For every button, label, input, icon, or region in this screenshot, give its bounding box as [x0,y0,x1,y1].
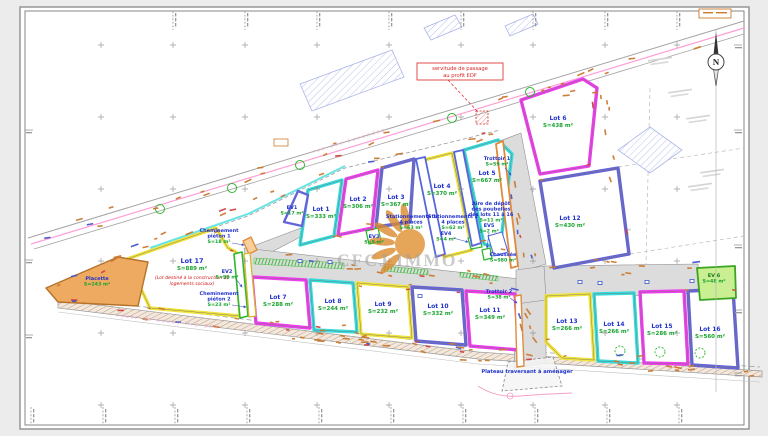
street-furniture-icon [328,261,332,264]
dimension-mark [608,107,610,111]
dimension-mark [343,338,350,340]
coordinate-tick-label [393,419,394,422]
feature-stat1-area: S=63 m² [400,225,423,231]
lot-16-label: Lot 16 [699,326,720,333]
coordinate-tick-label [679,18,680,21]
lot-17-label: Lot 17 [180,257,203,265]
coordinate-tick-label [735,247,742,248]
feature-aire-label: des lots 11 à 16 [469,212,514,218]
coordinate-tick-label [175,18,176,21]
dimension-mark [383,345,391,347]
lot-1-area: S=333 m² [306,213,337,220]
feature-aire-area: S=11 m² [480,218,503,224]
coordinate-tick-label [463,23,464,26]
coordinate-tick-label [679,23,680,26]
coordinate-tick-label [393,409,394,412]
coordinate-tick-label [609,419,610,422]
coordinate-tick-label [607,13,608,16]
lot-13-area: S=266 m² [552,325,583,332]
coordinate-tick-label [391,13,392,16]
lot-1-label: Lot 1 [312,206,329,213]
coordinate-tick-label [319,18,320,21]
street-sign-box [274,139,288,146]
dimension-mark [478,360,481,362]
street-furniture-icon [645,281,649,284]
coordinate-tick-label [535,13,536,16]
dimension-mark [361,341,368,343]
coordinate-tick-label [537,409,538,412]
lot-11-area: S=349 m² [475,314,506,321]
coordinate-tick-label [321,419,322,422]
watermark-text: CFCJ IMMO [337,250,458,270]
coordinate-tick-label [33,409,34,412]
coordinate-tick-label [26,337,32,338]
lot-11-label: Lot 11 [479,307,500,314]
scale-note-dash [716,12,727,13]
dimension-mark [364,344,369,346]
coordinate-tick-label [391,23,392,26]
dimension-mark [469,349,473,351]
coordinate-tick-label [537,419,538,422]
coordinate-tick-label [247,18,248,21]
feature-ev6-label: EV 6 [708,273,721,279]
north-arrow-label: N [713,57,720,67]
feature-placette-area: S=243 m² [84,282,110,288]
lot-8-label: Lot 8 [324,298,341,305]
dimension-mark [523,253,525,258]
feature-chem1-label: piéton 1 [207,234,231,240]
feature-ev1-area: S=17 m² [281,211,304,217]
coordinate-tick-label [607,18,608,21]
lot-2-label: Lot 2 [349,196,366,203]
lot-3-area: S=367 m² [381,201,412,208]
lot-5-area: S=667 m² [472,177,503,184]
feature-trottoir2-area: S=38 m² [488,295,511,301]
dimension-mark [460,359,467,361]
feature-ev6-area: S=48 m² [703,279,726,285]
dimension-mark [629,362,635,364]
feature-ev4-area: S=4 m² [436,237,456,243]
feature-ev5-label: EV5 [484,223,495,229]
coordinate-tick-label [681,419,682,422]
lot-17-area: S=889 m² [177,265,208,272]
coordinate-tick-label [33,414,34,417]
coordinate-tick-label [249,419,250,422]
lot-14-parcel [594,293,638,363]
feature-stat2-area: S=62 m² [442,225,465,231]
street-furniture-icon [578,281,582,284]
dimension-mark [374,157,380,159]
lot-15-area: S=286 m² [647,330,678,337]
lot-12-label: Lot 12 [559,215,580,222]
dimension-mark [606,261,609,263]
feature-chaussee-label: Chaussée [490,252,518,258]
dimension-mark [485,359,490,361]
coordinate-tick-label [175,23,176,26]
coordinate-tick-label [735,132,742,133]
coordinate-tick-label [33,419,34,422]
feature-ev3-area: S=5 m² [364,240,384,246]
lot-10-label: Lot 10 [427,303,448,310]
feature-ev4-label: EV4 [441,231,452,237]
coordinate-tick-label [393,414,394,417]
lot-9-label: Lot 9 [374,301,391,308]
servitude-note-line1: servitude de passage [432,66,488,72]
coordinate-tick-label [249,409,250,412]
coordinate-tick-label [177,419,178,422]
feature-ev1-label: EV1 [287,205,298,211]
dimension-mark [689,365,694,367]
site-plan: CFCJ IMMO Lot 1S=333 m²Lot 2S=306 m²Lot … [0,0,768,436]
lot-7-area: S=288 m² [263,301,294,308]
lot-7-label: Lot 7 [269,294,286,301]
street-furniture-icon [418,295,422,298]
coordinate-tick-label [465,414,466,417]
lot-13-label: Lot 13 [556,318,577,325]
lot-12-area: S=430 m² [555,222,586,229]
feature-chaussee-area: S=980 m² [490,258,516,264]
dimension-mark [342,324,346,326]
coordinate-tick-label [735,312,742,313]
lot-15-label: Lot 15 [651,323,672,330]
dimension-mark [72,300,76,302]
coordinate-tick-label [321,409,322,412]
dimension-mark [275,321,279,323]
dimension-mark [292,338,295,340]
feature-ev2-label: EV2 [222,269,233,275]
coordinate-tick-label [175,13,176,16]
coordinate-tick-label [609,414,610,417]
coordinate-tick-label [535,18,536,21]
lot-14-label: Lot 14 [603,321,624,328]
lot-16-area: S=560 m² [695,333,726,340]
coordinate-tick-label [537,414,538,417]
servitude-note-line2: au profit EDF [443,73,477,79]
dimension-mark [621,274,624,276]
feature-trottoir1-label: Trottoir 1 [484,156,511,162]
coordinate-tick-label [319,23,320,26]
plateau-label: Plateau traversant à aménager [481,368,573,375]
lot-2-area: S=306 m² [343,203,374,210]
coordinate-tick-label [247,23,248,26]
dimension-mark [118,310,124,312]
street-furniture-icon [690,280,694,283]
lot-6-area: S=438 m² [543,122,574,129]
coordinate-tick-label [735,47,742,48]
lot-8-area: S=244 m² [318,305,349,312]
street-furniture-icon [598,282,602,285]
feature-chem2-label: piéton 2 [207,297,231,303]
street-furniture-icon [298,260,302,263]
dimension-mark [489,282,492,284]
feature-chem2-area: S=23 m² [208,302,231,308]
coordinate-tick-label [177,409,178,412]
coordinate-tick-label [26,132,32,133]
dimension-mark [749,375,754,377]
coordinate-tick-label [249,414,250,417]
dimension-mark [639,265,645,267]
feature-trottoir2-label: Trottoir 2 [486,289,513,295]
lot-3-label: Lot 3 [387,194,404,201]
feature-chem1-area: S=18 m² [208,239,231,245]
coordinate-tick-label [321,414,322,417]
feature-ev3-label: EV3 [369,234,380,240]
lot-10-area: S=332 m² [423,310,454,317]
coordinate-tick-label [105,419,106,422]
dimension-mark [320,330,325,332]
feature-trottoir1-area: S=59 m² [486,162,509,168]
dimension-mark [594,259,598,261]
coordinate-tick-label [319,13,320,16]
edf-servitude-box [476,111,488,124]
coordinate-tick-label [391,18,392,21]
lot-14-area: S=266 m² [599,328,630,335]
coordinate-tick-label [535,23,536,26]
coordinate-tick-label [105,409,106,412]
coordinate-tick-label [247,13,248,16]
dimension-mark [517,230,519,234]
lot-12-parcel [540,168,629,268]
plan-sheet-stage: CFCJ IMMO Lot 1S=333 m²Lot 2S=306 m²Lot … [0,0,768,436]
coordinate-tick-label [681,414,682,417]
dimension-mark [687,267,692,269]
coordinate-tick-label [609,409,610,412]
coordinate-tick-label [465,409,466,412]
coordinate-tick-label [607,23,608,26]
feature-placette-label: Placette [85,276,109,282]
scale-note-dash [703,12,713,13]
dimension-mark [457,292,460,294]
lot-17-note-line2: logements sociaux) [170,281,215,287]
coordinate-tick-label [26,262,32,263]
coordinate-tick-label [465,419,466,422]
scale-note-box [699,9,731,18]
feature-stat1-label: 4 places [399,220,422,226]
coordinate-tick-label [463,18,464,21]
coordinate-tick-label [735,375,742,376]
coordinate-tick-label [105,414,106,417]
coordinate-tick-label [463,13,464,16]
lot-5-label: Lot 5 [478,170,495,177]
lot-4-area: S=370 m² [427,190,458,197]
coordinate-tick-label [177,414,178,417]
feature-stat2-label: 4 places [441,220,464,226]
lot-6-label: Lot 6 [549,115,566,122]
coordinate-tick-label [681,409,682,412]
lot-4-label: Lot 4 [433,183,450,190]
feature-ev2-area: S=90 m² [216,275,239,281]
lot-9-area: S=232 m² [368,308,399,315]
coordinate-tick-label [679,13,680,16]
